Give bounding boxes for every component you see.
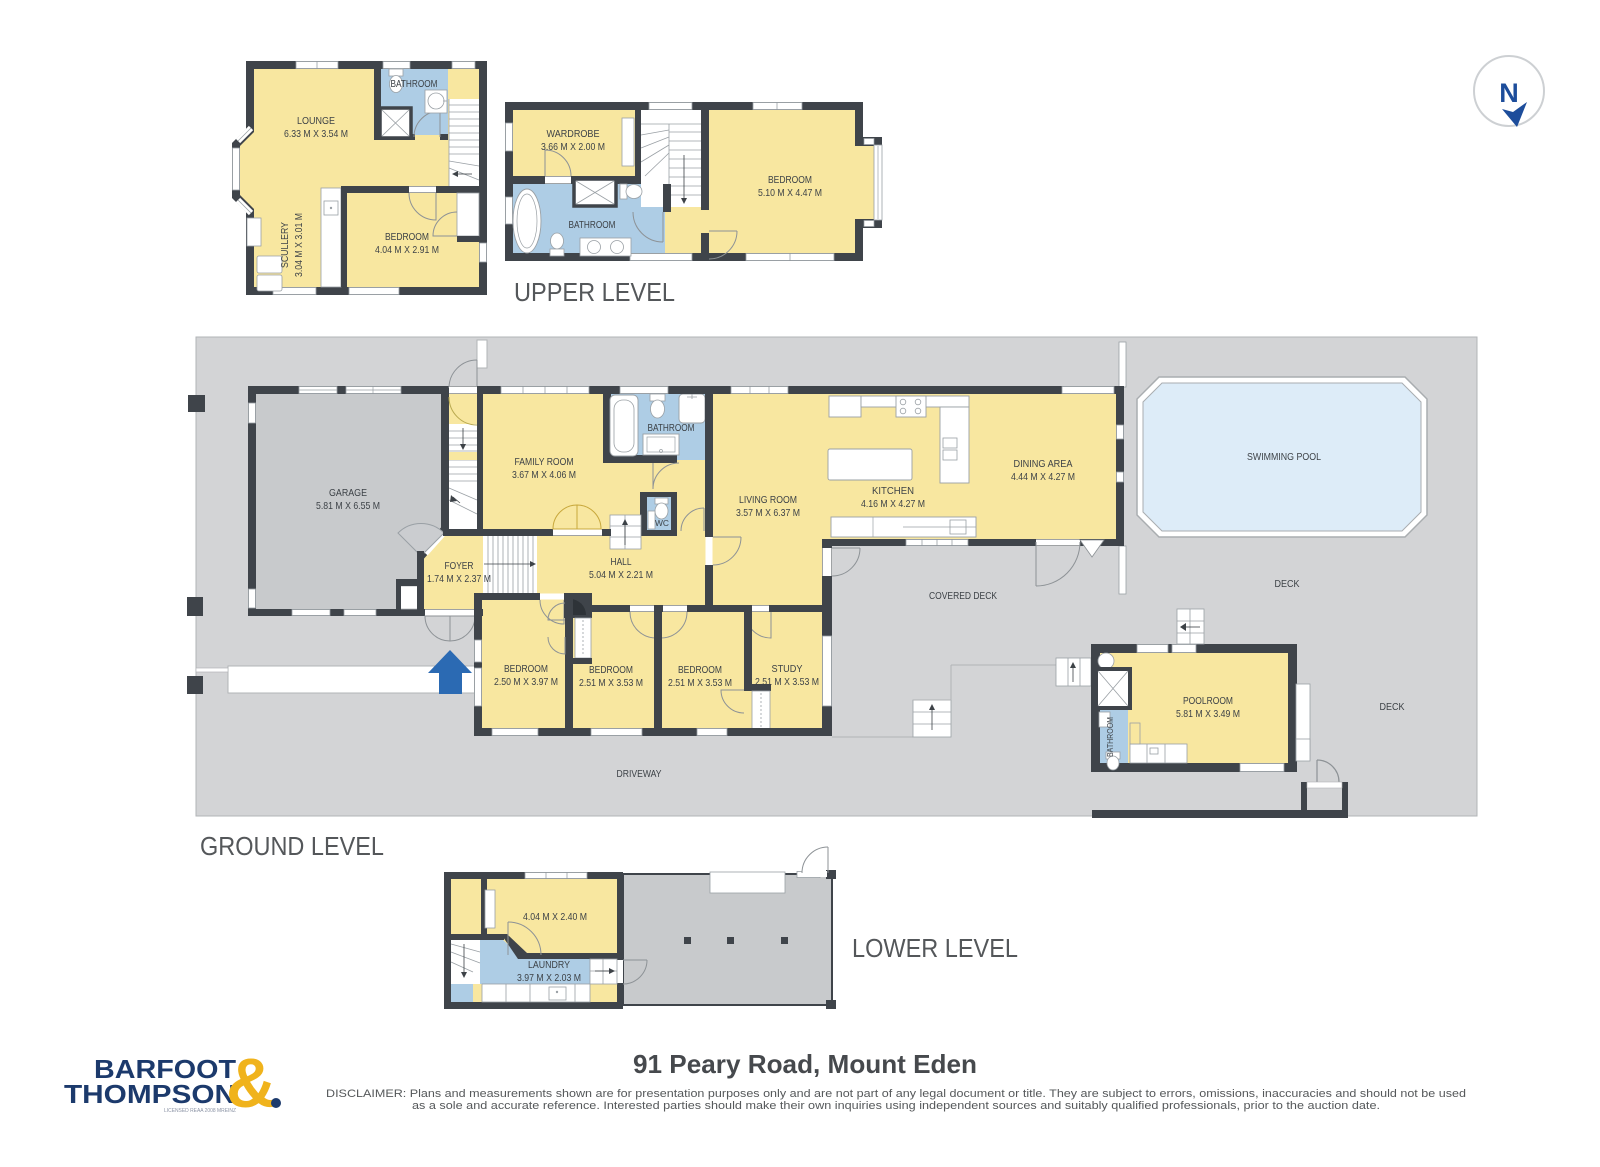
svg-text:DISCLAIMER: Plans and measurem: DISCLAIMER: Plans and measurements shown… bbox=[326, 1088, 1466, 1100]
svg-text:3.57 M X 6.37 M: 3.57 M X 6.37 M bbox=[736, 507, 800, 519]
svg-text:2.51 M X 3.53 M: 2.51 M X 3.53 M bbox=[668, 677, 732, 689]
svg-text:THOMPSON: THOMPSON bbox=[64, 1079, 236, 1109]
svg-text:BATHROOM: BATHROOM bbox=[648, 422, 695, 434]
svg-text:WC: WC bbox=[655, 518, 669, 528]
svg-text:HALL: HALL bbox=[611, 556, 632, 568]
svg-text:5.04 M X 2.21 M: 5.04 M X 2.21 M bbox=[589, 569, 653, 581]
svg-text:LOUNGE: LOUNGE bbox=[297, 115, 335, 127]
svg-text:2.51 M X 3.53 M: 2.51 M X 3.53 M bbox=[755, 676, 819, 688]
svg-text:2.51 M X 3.53 M: 2.51 M X 3.53 M bbox=[579, 677, 643, 689]
svg-text:3.66 M X 2.00 M: 3.66 M X 2.00 M bbox=[541, 141, 605, 153]
svg-text:LOWER LEVEL: LOWER LEVEL bbox=[852, 933, 1018, 963]
svg-text:3.04 M X 3.01 M: 3.04 M X 3.01 M bbox=[293, 213, 305, 277]
svg-text:GROUND LEVEL: GROUND LEVEL bbox=[200, 831, 384, 861]
svg-text:UPPER LEVEL: UPPER LEVEL bbox=[514, 277, 675, 307]
svg-text:4.16 M X 4.27 M: 4.16 M X 4.27 M bbox=[861, 498, 925, 510]
svg-text:FAMILY ROOM: FAMILY ROOM bbox=[515, 456, 574, 468]
svg-text:5.10 M X 4.47 M: 5.10 M X 4.47 M bbox=[758, 187, 822, 199]
svg-text:KITCHEN: KITCHEN bbox=[872, 485, 914, 497]
svg-text:WARDROBE: WARDROBE bbox=[547, 128, 600, 140]
svg-text:BEDROOM: BEDROOM bbox=[768, 174, 812, 186]
svg-text:5.81 M X 6.55 M: 5.81 M X 6.55 M bbox=[316, 500, 380, 512]
svg-text:6.33 M X 3.54 M: 6.33 M X 3.54 M bbox=[284, 128, 348, 140]
svg-text:POOLROOM: POOLROOM bbox=[1183, 695, 1233, 707]
svg-text:DECK: DECK bbox=[1275, 578, 1300, 590]
svg-text:STUDY: STUDY bbox=[772, 663, 803, 675]
svg-text:BATHROOM: BATHROOM bbox=[391, 78, 438, 90]
svg-text:91 Peary Road, Mount Eden: 91 Peary Road, Mount Eden bbox=[633, 1049, 977, 1079]
svg-text:5.81 M X 3.49 M: 5.81 M X 3.49 M bbox=[1176, 708, 1240, 720]
svg-text:LAUNDRY: LAUNDRY bbox=[528, 959, 570, 971]
svg-text:BEDROOM: BEDROOM bbox=[385, 231, 429, 243]
svg-text:BEDROOM: BEDROOM bbox=[504, 663, 548, 675]
svg-text:2.50 M X 3.97 M: 2.50 M X 3.97 M bbox=[494, 676, 558, 688]
svg-text:3.97 M X 2.03 M: 3.97 M X 2.03 M bbox=[517, 972, 581, 984]
svg-text:FOYER: FOYER bbox=[445, 560, 474, 572]
svg-text:LIVING ROOM: LIVING ROOM bbox=[739, 494, 797, 506]
svg-text:COVERED DECK: COVERED DECK bbox=[929, 590, 997, 602]
svg-text:BATHROOM: BATHROOM bbox=[569, 219, 616, 231]
svg-text:GARAGE: GARAGE bbox=[329, 487, 367, 499]
svg-text:DINING AREA: DINING AREA bbox=[1014, 458, 1073, 470]
svg-text:1.74 M X 2.37 M: 1.74 M X 2.37 M bbox=[427, 573, 491, 585]
svg-text:4.04 M X 2.40 M: 4.04 M X 2.40 M bbox=[523, 911, 587, 923]
svg-text:BEDROOM: BEDROOM bbox=[678, 664, 722, 676]
svg-text:SWIMMING POOL: SWIMMING POOL bbox=[1247, 451, 1321, 463]
svg-text:BEDROOM: BEDROOM bbox=[589, 664, 633, 676]
svg-text:BATHROOM: BATHROOM bbox=[1105, 717, 1115, 757]
svg-text:4.44 M X 4.27 M: 4.44 M X 4.27 M bbox=[1011, 471, 1075, 483]
svg-text:N: N bbox=[1499, 78, 1519, 108]
svg-text:DRIVEWAY: DRIVEWAY bbox=[617, 768, 662, 780]
svg-text:SCULLERY: SCULLERY bbox=[279, 222, 291, 268]
svg-text:as a sole and accurate referen: as a sole and accurate reference. Intere… bbox=[412, 1100, 1380, 1112]
svg-text:4.04 M X 2.91 M: 4.04 M X 2.91 M bbox=[375, 244, 439, 256]
svg-text:3.67 M X 4.06 M: 3.67 M X 4.06 M bbox=[512, 469, 576, 481]
svg-text:LICENSED REAA 2008 MREINZ: LICENSED REAA 2008 MREINZ bbox=[164, 1108, 237, 1114]
svg-text:DECK: DECK bbox=[1380, 701, 1405, 713]
